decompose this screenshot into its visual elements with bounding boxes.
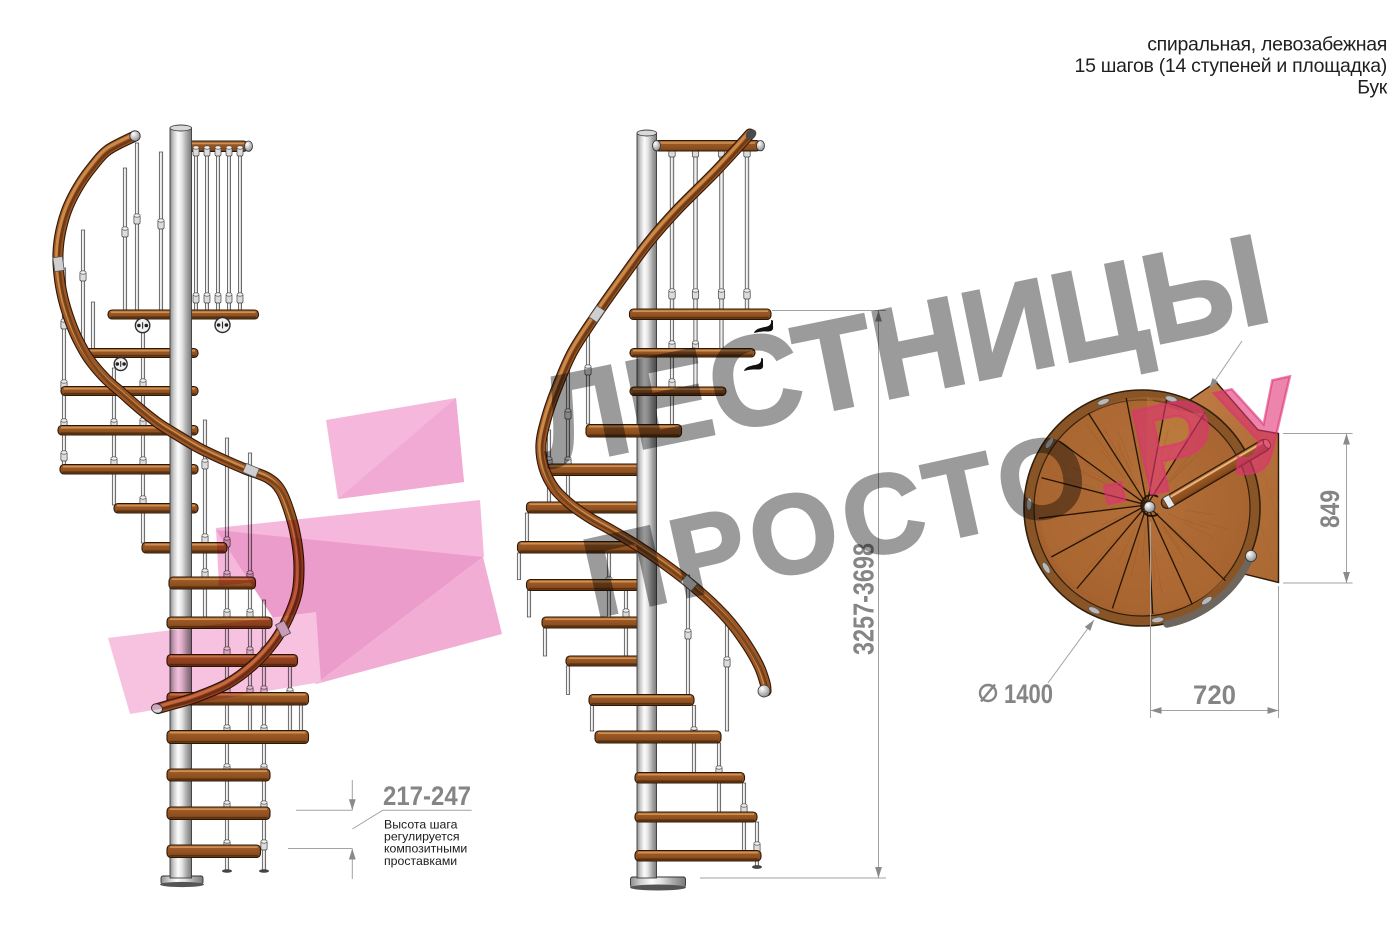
svg-text:Бук: Бук xyxy=(1357,77,1388,99)
svg-text:проставками: проставками xyxy=(384,854,457,868)
svg-text:1400: 1400 xyxy=(1004,679,1053,709)
svg-text:15 шагов (14 ступеней и площад: 15 шагов (14 ступеней и площадка) xyxy=(1075,55,1387,77)
svg-text:спиральная, левозабежная: спиральная, левозабежная xyxy=(1147,34,1387,56)
svg-text:217-247: 217-247 xyxy=(383,781,471,811)
svg-text:849: 849 xyxy=(1315,490,1345,528)
svg-text:720: 720 xyxy=(1193,680,1236,710)
